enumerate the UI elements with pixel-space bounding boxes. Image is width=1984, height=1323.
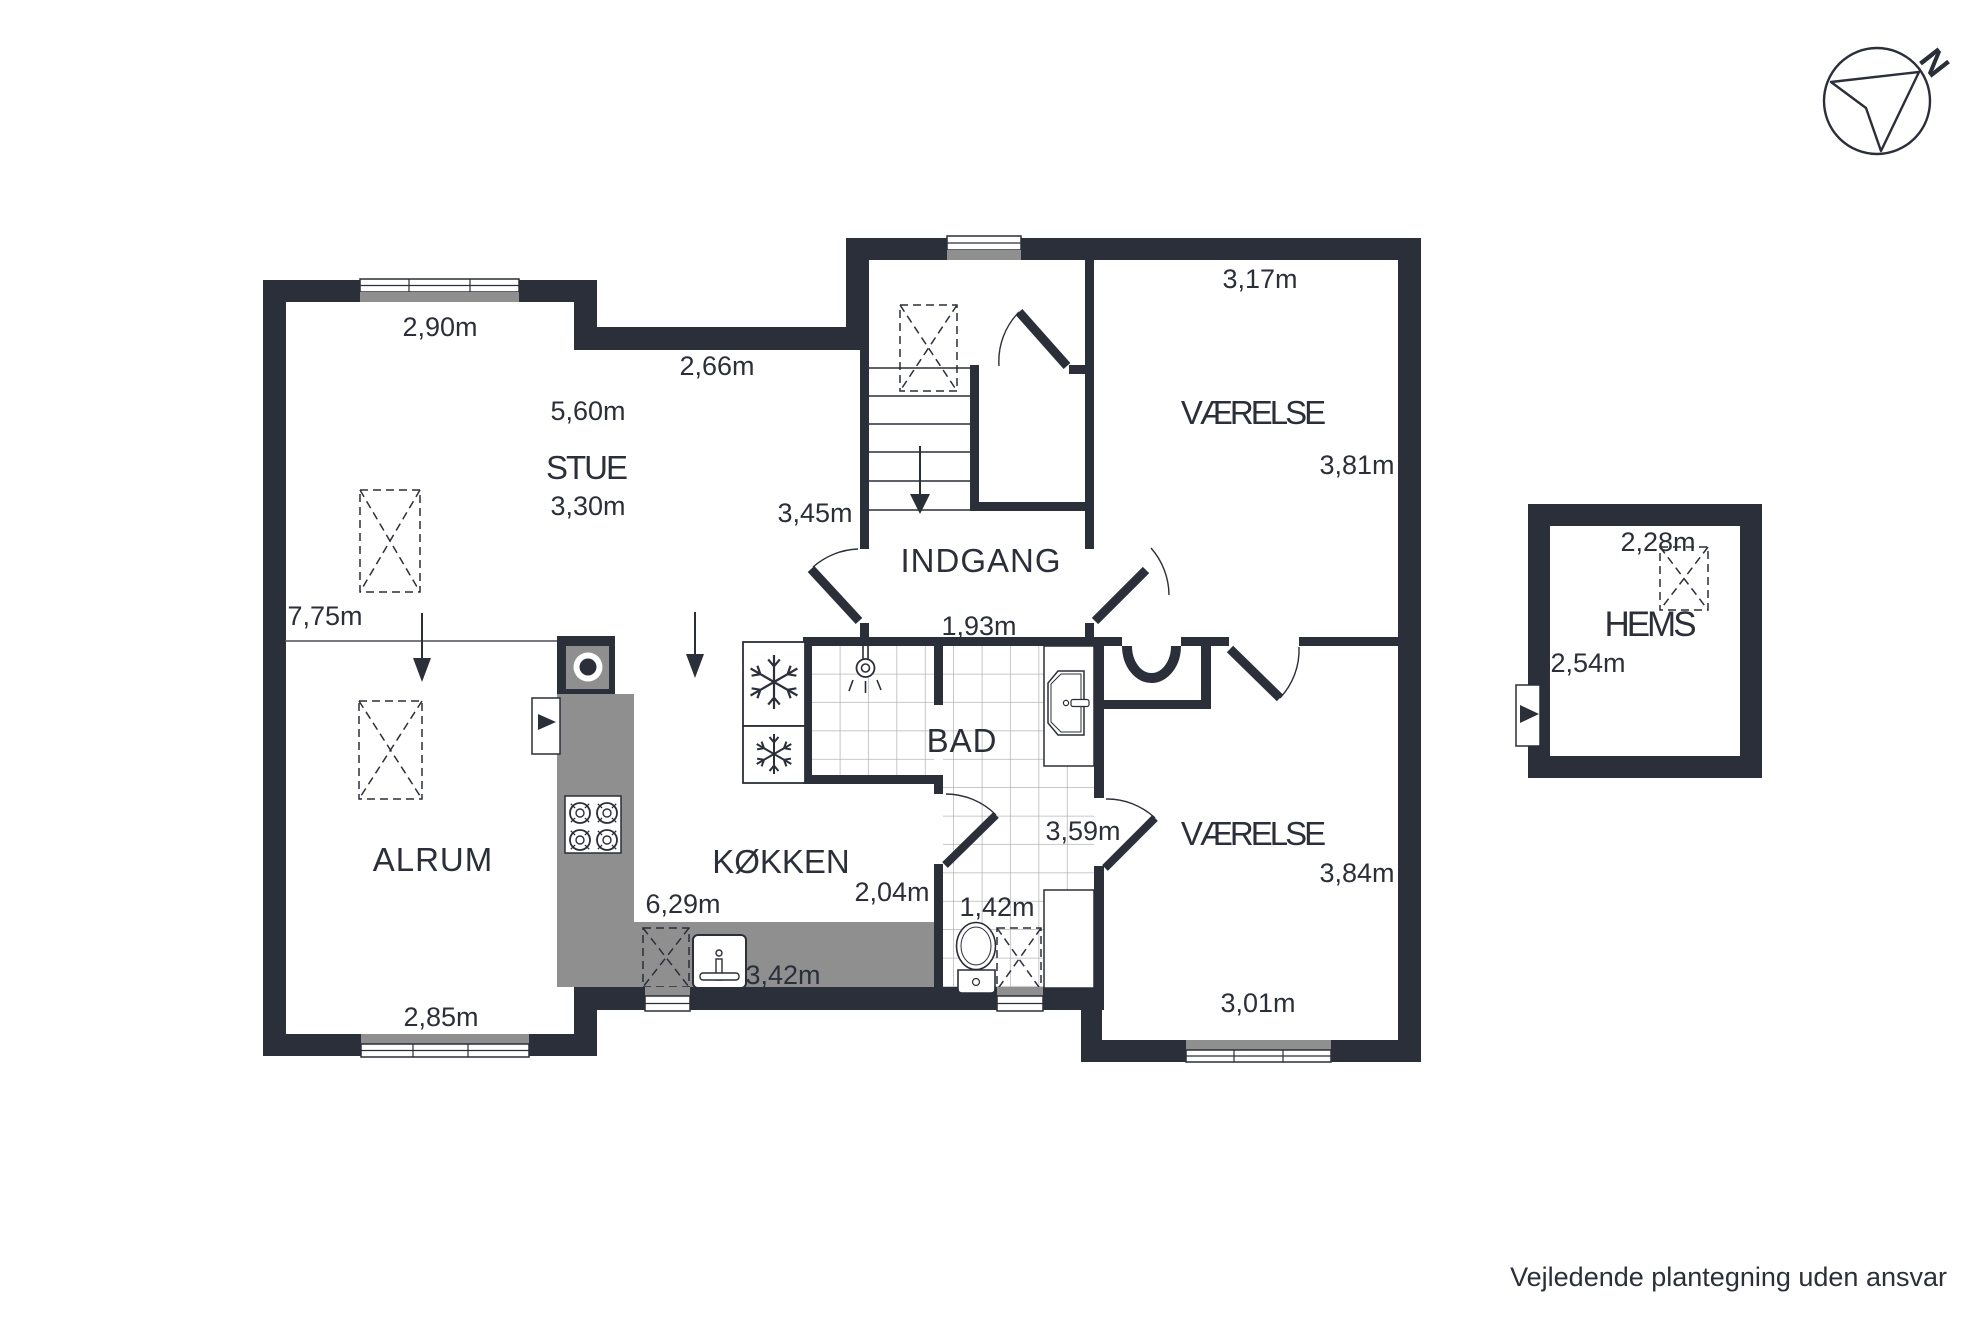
svg-text:3,84m: 3,84m bbox=[1319, 858, 1394, 888]
svg-text:KØKKEN: KØKKEN bbox=[712, 843, 850, 880]
svg-text:3,59m: 3,59m bbox=[1045, 816, 1120, 846]
svg-text:VÆRELSE: VÆRELSE bbox=[1181, 815, 1325, 852]
svg-text:7,75m: 7,75m bbox=[287, 601, 362, 631]
svg-text:STUE: STUE bbox=[546, 449, 627, 486]
svg-text:2,04m: 2,04m bbox=[854, 877, 929, 907]
svg-text:2,90m: 2,90m bbox=[402, 312, 477, 342]
svg-text:BAD: BAD bbox=[927, 722, 998, 759]
svg-text:3,81m: 3,81m bbox=[1319, 450, 1394, 480]
svg-text:3,42m: 3,42m bbox=[745, 960, 820, 990]
svg-text:3,30m: 3,30m bbox=[550, 491, 625, 521]
svg-text:VÆRELSE: VÆRELSE bbox=[1181, 394, 1325, 431]
svg-text:Vejledende plantegning uden an: Vejledende plantegning uden ansvar bbox=[1510, 1262, 1947, 1292]
svg-text:2,66m: 2,66m bbox=[679, 351, 754, 381]
svg-text:1,42m: 1,42m bbox=[959, 892, 1034, 922]
svg-text:2,85m: 2,85m bbox=[403, 1002, 478, 1032]
svg-text:6,29m: 6,29m bbox=[645, 889, 720, 919]
svg-text:2,28m: 2,28m bbox=[1620, 527, 1695, 557]
svg-text:2,54m: 2,54m bbox=[1550, 648, 1625, 678]
svg-text:3,45m: 3,45m bbox=[777, 498, 852, 528]
svg-text:INDGANG: INDGANG bbox=[900, 542, 1061, 579]
svg-text:HEMS: HEMS bbox=[1604, 605, 1695, 644]
svg-text:1,93m: 1,93m bbox=[941, 611, 1016, 641]
svg-text:ALRUM: ALRUM bbox=[373, 841, 494, 878]
svg-text:3,01m: 3,01m bbox=[1220, 988, 1295, 1018]
svg-text:5,60m: 5,60m bbox=[550, 396, 625, 426]
svg-text:3,17m: 3,17m bbox=[1222, 264, 1297, 294]
